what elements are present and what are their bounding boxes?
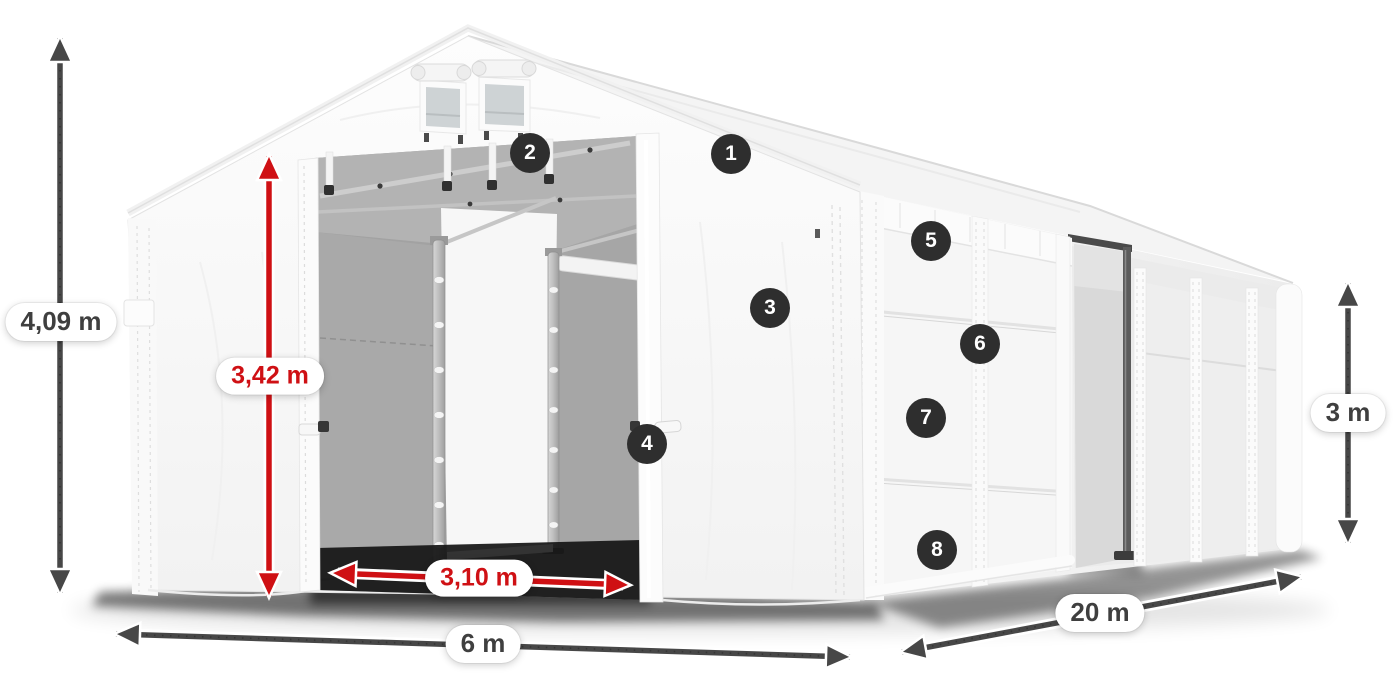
label-door-height: 3,42 m	[216, 358, 324, 395]
callout-badge-8: 8	[917, 530, 957, 570]
tent-illustration	[0, 0, 1400, 700]
label-side-height: 3 m	[1311, 394, 1386, 432]
far-door-opening	[441, 208, 557, 560]
callout-badge-6: 6	[960, 324, 1000, 364]
callout-badge-3: 3	[750, 288, 790, 328]
callout-badge-5: 5	[911, 221, 951, 261]
label-door-width: 3,10 m	[425, 560, 533, 597]
label-length: 20 m	[1055, 594, 1144, 632]
tent-dimension-diagram: 4,09 m 3,42 m 3,10 m 6 m 20 m 3 m 1 2 3 …	[0, 0, 1400, 700]
callout-badge-2: 2	[510, 133, 550, 173]
callout-badge-1: 1	[711, 134, 751, 174]
left-door-handle	[299, 424, 320, 435]
callout-badge-4: 4	[627, 424, 667, 464]
label-total-height: 4,09 m	[6, 303, 117, 341]
door-frame-pole	[1123, 247, 1131, 555]
callout-badge-7: 7	[906, 398, 946, 438]
label-front-width: 6 m	[446, 625, 521, 663]
open-left-door-leaf	[315, 232, 437, 586]
door-opening-interior	[315, 136, 649, 600]
